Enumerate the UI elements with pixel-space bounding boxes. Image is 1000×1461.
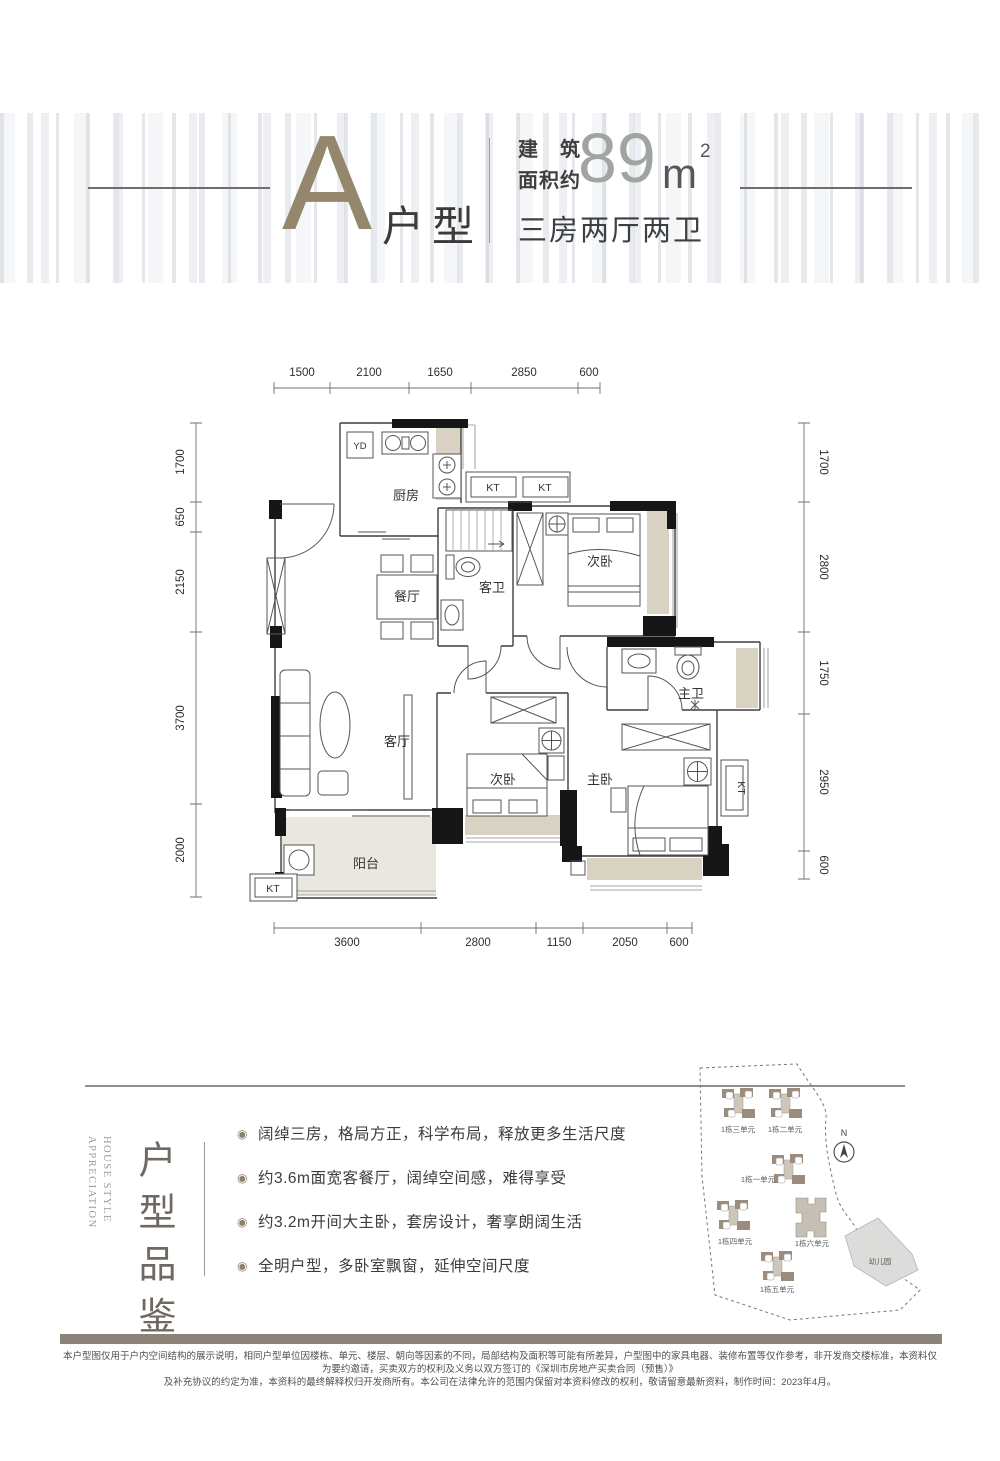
area-exponent: 2 bbox=[700, 141, 711, 163]
bullet-icon: ◉ bbox=[237, 1126, 248, 1143]
feature-item: ◉约3.6m面宽客餐厅，阔绰空间感，难得享受 bbox=[237, 1170, 697, 1187]
dim-right-5: 600 bbox=[817, 855, 829, 874]
building-unit-6 bbox=[761, 1251, 794, 1281]
feature-text: 约3.6m面宽客餐厅，阔绰空间感，难得享受 bbox=[258, 1170, 566, 1187]
feature-item: ◉阔绰三房，格局方正，科学布局，释放更多生活尺度 bbox=[237, 1126, 697, 1143]
dim-right-1: 1700 bbox=[817, 449, 829, 475]
feature-text: 阔绰三房，格局方正，科学布局，释放更多生活尺度 bbox=[258, 1126, 626, 1143]
layout-subtitle: 三房两厅两卫 bbox=[518, 207, 704, 249]
building-unit-label-3: 1栋一单元 bbox=[741, 1174, 776, 1184]
dim-left-5: 2000 bbox=[175, 837, 187, 863]
building-unit-5 bbox=[796, 1198, 826, 1237]
header-banner: A 户型 建筑 面积约 89 m 2 三房两厅两卫 bbox=[0, 113, 1000, 283]
room-label-guest-bath: 客卫 bbox=[479, 580, 505, 595]
feature-list: ◉阔绰三房，格局方正，科学布局，释放更多生活尺度 ◉约3.6m面宽客餐厅，阔绰空… bbox=[237, 1126, 697, 1302]
label-kt-1: KT bbox=[486, 482, 500, 494]
floor-plan: 1500 2100 1650 2850 600 3600 2800 1150 2… bbox=[170, 358, 830, 958]
disclaimer-line2: 及补充协议的约定为准，本资料的最终解释权归开发商所有。本公司在法律允许的范围内保… bbox=[61, 1376, 939, 1389]
site-map: 幼儿园 N 1栋三单元1栋二单元1栋一单元1栋四单元1栋六单元1栋五单元 bbox=[682, 1056, 940, 1326]
compass-n-label: N bbox=[841, 1128, 848, 1138]
footer-bar bbox=[60, 1334, 942, 1344]
building-unit-label-4: 1栋四单元 bbox=[718, 1236, 753, 1246]
feature-item: ◉全明户型，多卧室飘窗，延伸空间尺度 bbox=[237, 1258, 697, 1275]
building-unit-label-1: 1栋三单元 bbox=[721, 1124, 756, 1134]
section-title-cn: 户型品鉴 bbox=[126, 1140, 181, 1348]
dim-bottom-2: 2800 bbox=[465, 937, 491, 949]
room-label-master: 主卧 bbox=[587, 772, 613, 787]
dim-right-2: 2800 bbox=[817, 554, 829, 580]
room-label-balcony: 阳台 bbox=[353, 856, 379, 871]
section-title-en: HOUSE STYLE APPRECIATION bbox=[84, 1136, 114, 1229]
unit-letter: A bbox=[282, 115, 372, 250]
section-title-divider bbox=[204, 1142, 205, 1276]
label-yd: YD bbox=[353, 441, 366, 452]
building-unit-4 bbox=[717, 1200, 750, 1230]
disclaimer-line1: 本户型图仅用于户内空间结构的展示说明，相同户型单位因楼栋、单元、楼层、朝向等因素… bbox=[61, 1350, 939, 1376]
room-label-dining: 餐厅 bbox=[394, 589, 420, 604]
building-unit-label-5: 1栋六单元 bbox=[795, 1238, 830, 1248]
section-title-en-line1: HOUSE STYLE bbox=[99, 1136, 114, 1229]
header-left-rule bbox=[88, 187, 270, 189]
building-unit-label-6: 1栋五单元 bbox=[760, 1284, 795, 1294]
dim-top-5: 600 bbox=[579, 367, 598, 379]
feature-item: ◉约3.2m开间大主卧，套房设计，奢享朗阔生活 bbox=[237, 1214, 697, 1231]
label-kt-2: KT bbox=[538, 482, 552, 494]
dim-bottom-3: 1150 bbox=[547, 937, 572, 949]
dim-left-1: 1700 bbox=[175, 449, 187, 475]
room-label-living: 客厅 bbox=[384, 734, 410, 749]
building-unit-label-2: 1栋二单元 bbox=[768, 1124, 803, 1134]
room-label-kitchen: 厨房 bbox=[393, 488, 419, 503]
bullet-icon: ◉ bbox=[237, 1214, 248, 1231]
dim-left-2: 650 bbox=[175, 507, 187, 526]
dim-top-1: 1500 bbox=[289, 367, 315, 379]
dim-top-4: 2850 bbox=[511, 367, 537, 379]
kindergarten-label: 幼儿园 bbox=[869, 1256, 892, 1266]
dim-top-2: 2100 bbox=[356, 367, 382, 379]
dim-right-4: 2950 bbox=[817, 769, 829, 795]
section-title-en-line2: APPRECIATION bbox=[84, 1136, 99, 1229]
label-kt-3: KT bbox=[266, 883, 280, 895]
dim-left-4: 3700 bbox=[175, 705, 187, 731]
area-unit: m bbox=[662, 153, 697, 195]
header-divider bbox=[489, 138, 490, 243]
dim-bottom-4: 2050 bbox=[612, 937, 638, 949]
bullet-icon: ◉ bbox=[237, 1258, 248, 1275]
room-label-bedroom-mid: 次卧 bbox=[490, 772, 516, 787]
page: A 户型 建筑 面积约 89 m 2 三房两厅两卫 1500 2100 1650… bbox=[0, 0, 1000, 1461]
disclaimer: 本户型图仅用于户内空间结构的展示说明，相同户型单位因楼栋、单元、楼层、朝向等因素… bbox=[61, 1350, 939, 1389]
building-unit-2 bbox=[769, 1088, 802, 1118]
room-label-bedroom-top: 次卧 bbox=[587, 554, 613, 569]
dim-top-3: 1650 bbox=[427, 367, 453, 379]
label-kt-4: KT bbox=[735, 781, 747, 795]
dim-left-3: 2150 bbox=[175, 569, 187, 595]
bullet-icon: ◉ bbox=[237, 1170, 248, 1187]
building-unit-1 bbox=[722, 1088, 755, 1118]
feature-text: 约3.2m开间大主卧，套房设计，奢享朗阔生活 bbox=[258, 1214, 582, 1231]
area-value: 89 bbox=[578, 123, 656, 193]
dim-bottom-1: 3600 bbox=[334, 937, 360, 949]
unit-suffix: 户型 bbox=[382, 193, 482, 254]
dim-right-3: 1750 bbox=[817, 660, 829, 686]
header-right-rule bbox=[740, 187, 912, 189]
compass: N bbox=[834, 1128, 854, 1162]
feature-text: 全明户型，多卧室飘窗，延伸空间尺度 bbox=[258, 1258, 530, 1275]
room-label-master-bath: 主卫 bbox=[678, 686, 704, 701]
building-unit-3 bbox=[772, 1154, 805, 1184]
dimension-lines: 1500 2100 1650 2850 600 3600 2800 1150 2… bbox=[175, 367, 829, 949]
dim-bottom-5: 600 bbox=[669, 937, 688, 949]
